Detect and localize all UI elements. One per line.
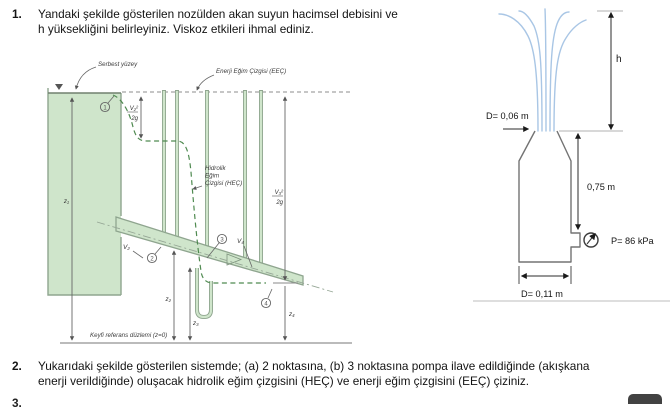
question-2-line1: Yukarıdaki şekilde gösterilen sistemde; … xyxy=(38,359,589,374)
question-1-number: 1. xyxy=(12,7,38,37)
question-2-text: Yukarıdaki şekilde gösterilen sistemde; … xyxy=(38,359,589,389)
question-3-number-clipped: 3. xyxy=(12,396,22,410)
worksheet-page: { "doc": { "q1_number": "1.", "q1_line1"… xyxy=(0,0,671,401)
velocity-head-v3: V₃² 2g xyxy=(272,190,284,206)
velocity-head-v2: V₂² 2g xyxy=(127,106,139,122)
point-2: 2 xyxy=(150,256,154,262)
pressure-gauge-icon xyxy=(584,233,598,247)
question-2: 2. Yukarıdaki şekilde gösterilen sistemd… xyxy=(12,359,589,389)
z4-label: z₄ xyxy=(288,311,295,318)
h-label: h xyxy=(616,54,622,65)
question-1-line2: h yüksekliğini belirleyiniz. Viskoz etki… xyxy=(38,22,398,37)
pressure-label: P= 86 kPa xyxy=(611,236,655,246)
v2-label: V₂ xyxy=(123,244,130,251)
hgl-label-line2: Eğim xyxy=(205,173,219,180)
pipe-system-figure: 1 2 3 4 V₂² 2g V₃² 2g Serbest yüzey Ener… xyxy=(40,55,360,355)
vessel-outline xyxy=(519,131,580,262)
free-surface-marker-icon xyxy=(55,84,63,90)
question-1-text: Yandaki şekilde gösterilen nozülden akan… xyxy=(38,7,398,37)
point-4: 4 xyxy=(264,301,268,307)
point-3: 3 xyxy=(220,237,224,243)
tank-water xyxy=(48,93,121,295)
v3-head-numerator: V₃² xyxy=(275,190,284,196)
question-2-line2: enerji verildiğinde) oluşacak hidrolik e… xyxy=(38,374,589,389)
z3-label: z₃ xyxy=(192,320,199,327)
nozzle-diameter-label: D= 0,06 m xyxy=(486,111,529,121)
inclined-pipe xyxy=(116,217,303,285)
z1-label: z₁ xyxy=(63,198,69,205)
u-tube xyxy=(197,268,211,317)
reference-plane-label: Keyfi referans düzlemi (z=0) xyxy=(90,332,167,339)
v4-label: V₄ xyxy=(237,238,244,245)
question-1-line1: Yandaki şekilde gösterilen nozülden akan… xyxy=(38,7,398,22)
question-2-number: 2. xyxy=(12,359,38,389)
height-label: 0,75 m xyxy=(587,182,615,192)
free-surface-label: Serbest yüzey xyxy=(98,61,138,68)
pipe-centerline xyxy=(97,222,333,292)
clipped-dark-element xyxy=(628,394,662,404)
nozzle-figure: h D= 0,06 m 0,75 m P= 86 kPa D= 0,11 m xyxy=(470,0,671,310)
egl-label: Enerji Eğim Çizgisi (EEÇ) xyxy=(216,68,286,75)
z2-label: z₂ xyxy=(164,296,171,303)
v2-head-numerator: V₂² xyxy=(130,106,139,112)
v3-head-denominator: 2g xyxy=(275,200,283,206)
bottom-diameter-label: D= 0,11 m xyxy=(521,289,563,299)
v2-head-denominator: 2g xyxy=(130,116,138,122)
hgl-label-line1: Hidrolik xyxy=(205,165,227,172)
question-1: 1. Yandaki şekilde gösterilen nozülden a… xyxy=(12,7,398,37)
hgl-label-line3: Çizgisi (HEÇ) xyxy=(205,180,242,187)
